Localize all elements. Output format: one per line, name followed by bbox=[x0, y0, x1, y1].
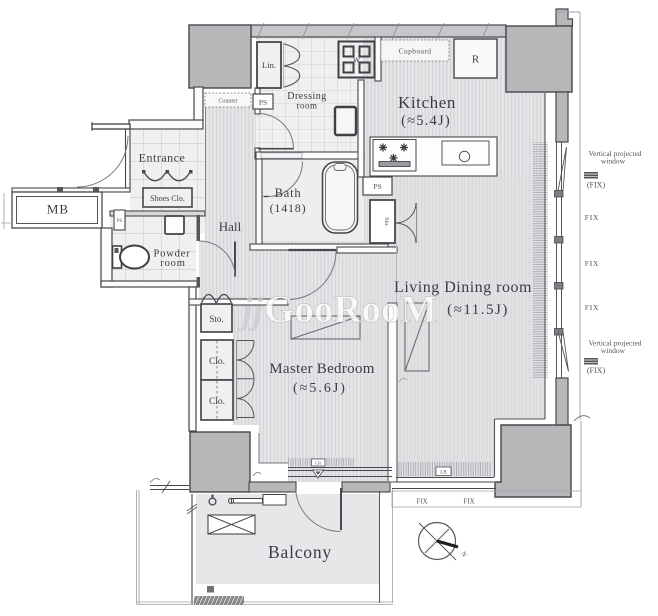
svg-text:Lin.: Lin. bbox=[262, 60, 276, 70]
svg-text:(FIX): (FIX) bbox=[587, 366, 606, 375]
svg-text:CB: CB bbox=[315, 461, 321, 466]
svg-text:(FIX): (FIX) bbox=[587, 181, 606, 190]
svg-text:Sto.: Sto. bbox=[383, 217, 389, 227]
svg-text:Entrance: Entrance bbox=[139, 151, 186, 165]
svg-text:W: W bbox=[353, 56, 361, 65]
svg-text:PS: PS bbox=[373, 182, 381, 191]
svg-text:window: window bbox=[601, 346, 626, 355]
svg-text:(≈5.6J): (≈5.6J) bbox=[293, 381, 347, 396]
svg-text:GooRooM: GooRooM bbox=[264, 288, 437, 331]
svg-text:Master Bedroom: Master Bedroom bbox=[269, 361, 374, 377]
svg-text:Sto.: Sto. bbox=[209, 314, 223, 324]
svg-text:FIX: FIX bbox=[585, 303, 600, 312]
svg-text:FIX: FIX bbox=[416, 498, 427, 506]
svg-text:(≈11.5J): (≈11.5J) bbox=[447, 302, 509, 318]
svg-text:room: room bbox=[160, 258, 185, 269]
svg-text:Clo.: Clo. bbox=[209, 397, 225, 407]
svg-text:Counter: Counter bbox=[218, 99, 237, 105]
svg-text:PS: PS bbox=[259, 98, 267, 107]
svg-text:(≈5.4J): (≈5.4J) bbox=[401, 113, 451, 129]
svg-text:Hall: Hall bbox=[219, 219, 242, 234]
svg-text:FIX: FIX bbox=[585, 213, 600, 222]
svg-text:window: window bbox=[601, 157, 626, 166]
svg-text:room: room bbox=[297, 101, 318, 111]
svg-text:MB: MB bbox=[47, 202, 69, 217]
svg-text:Clo.: Clo. bbox=[209, 357, 225, 367]
svg-text:(1418): (1418) bbox=[270, 201, 307, 215]
svg-text:FIX: FIX bbox=[585, 259, 600, 268]
svg-text:Cupboard: Cupboard bbox=[399, 47, 432, 56]
svg-text:Shoes Clo.: Shoes Clo. bbox=[150, 194, 185, 203]
svg-text:Bath: Bath bbox=[275, 186, 302, 200]
svg-text:Balcony: Balcony bbox=[268, 542, 332, 562]
svg-text:LB: LB bbox=[440, 471, 447, 476]
svg-text:FIX: FIX bbox=[463, 498, 474, 506]
svg-text:PS: PS bbox=[117, 219, 123, 224]
svg-text:R: R bbox=[472, 54, 480, 66]
svg-text:Kitchen: Kitchen bbox=[398, 93, 456, 112]
